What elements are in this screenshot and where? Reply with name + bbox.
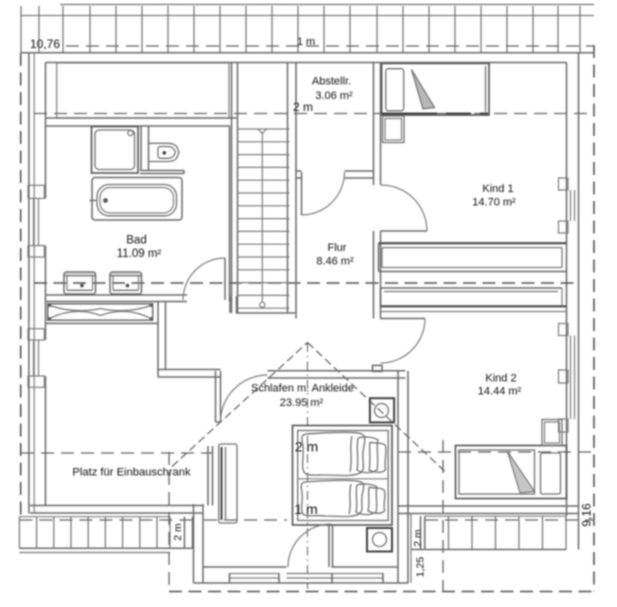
svg-text:1 m: 1 m — [294, 501, 317, 517]
svg-text:Bad: Bad — [126, 235, 146, 247]
svg-text:Flur: Flur — [328, 242, 347, 254]
svg-text:Kind 1: Kind 1 — [482, 183, 513, 195]
svg-text:1,25: 1,25 — [415, 557, 427, 578]
svg-text:14.70 m²: 14.70 m² — [472, 197, 516, 209]
svg-text:9,16: 9,16 — [580, 503, 594, 527]
svg-text:10,76: 10,76 — [30, 37, 60, 51]
svg-text:1 m: 1 m — [297, 36, 315, 48]
svg-text:2 m: 2 m — [172, 523, 184, 541]
svg-text:2 m: 2 m — [295, 439, 318, 455]
svg-text:Abstellr.: Abstellr. — [312, 76, 351, 88]
svg-text:Schlafen m. Ankleide: Schlafen m. Ankleide — [251, 383, 354, 395]
svg-text:14.44 m²: 14.44 m² — [478, 386, 522, 398]
svg-text:3.06 m²: 3.06 m² — [315, 90, 353, 102]
svg-text:2 m: 2 m — [293, 100, 313, 114]
svg-text:Kind 2: Kind 2 — [485, 373, 516, 385]
svg-text:11.09 m²: 11.09 m² — [117, 248, 162, 260]
svg-text:Platz für Einbauschrank: Platz für Einbauschrank — [72, 467, 191, 479]
svg-text:2 m: 2 m — [412, 529, 424, 547]
svg-text:8.46 m²: 8.46 m² — [316, 256, 354, 268]
svg-text:23.95 m²: 23.95 m² — [280, 397, 324, 409]
